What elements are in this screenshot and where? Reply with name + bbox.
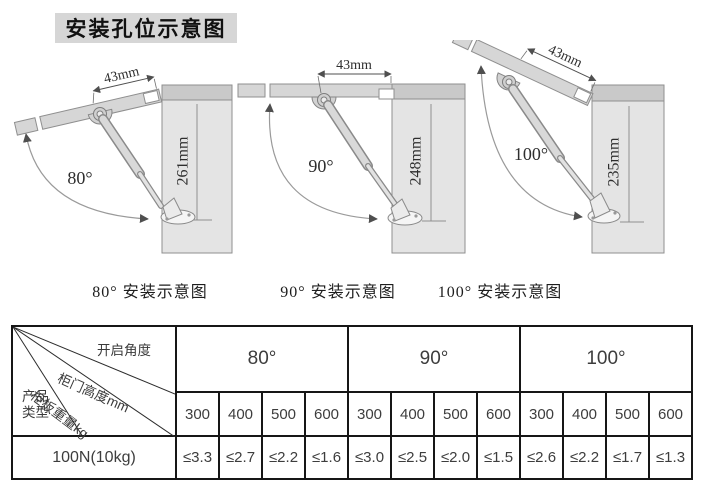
value-cell: ≤2.7 [219, 436, 262, 479]
height-dimension-label: 248mm [408, 136, 425, 185]
height-header: 400 [563, 392, 606, 436]
height-header: 600 [305, 392, 348, 436]
value-cell: ≤1.3 [649, 436, 692, 479]
height-header: 600 [477, 392, 520, 436]
value-cell: ≤3.0 [348, 436, 391, 479]
angle-header-80: 80° [176, 326, 348, 392]
value-cell: ≤1.5 [477, 436, 520, 479]
height-header: 500 [606, 392, 649, 436]
spec-table: 开启角度 柜门高度mm 柜板重量kg 产品 类型 80° 90° 100° 30… [11, 325, 693, 480]
cabinet-panel [592, 85, 664, 253]
table-row: 100N(10kg) ≤3.3 ≤2.7 ≤2.2 ≤1.6 ≤3.0 ≤2.5… [12, 436, 692, 479]
height-header: 400 [391, 392, 434, 436]
value-cell: ≤2.0 [434, 436, 477, 479]
installation-diagrams: 261mm 43mm 80 [0, 40, 704, 302]
cabinet-panel [392, 84, 465, 253]
page-title: 安装孔位示意图 [55, 13, 237, 43]
angle-label: 100° [514, 144, 548, 164]
height-dimension-label: 235mm [606, 137, 623, 186]
width-dimension-label: 43mm [546, 42, 585, 71]
height-header: 300 [176, 392, 219, 436]
diagram-90: 248mm 43mm 90° [238, 58, 465, 253]
height-header: 500 [434, 392, 477, 436]
width-dimension-label: 43mm [336, 58, 372, 73]
diagram-80: 261mm 43mm 80 [8, 61, 232, 253]
door: 43mm [452, 40, 605, 105]
value-cell: ≤2.2 [563, 436, 606, 479]
corner-header-cell: 开启角度 柜门高度mm 柜板重量kg 产品 类型 [12, 326, 176, 436]
angle-header-90: 90° [348, 326, 520, 392]
door [238, 84, 265, 97]
cabinet-top-band [162, 85, 232, 100]
height-header: 500 [262, 392, 305, 436]
cabinet-top-band [392, 84, 465, 99]
value-cell: ≤2.6 [520, 436, 563, 479]
corner-product-type-label: 产品 类型 [22, 389, 49, 421]
diagram-100: 235mm 43mm 10 [452, 40, 664, 253]
height-header: 400 [219, 392, 262, 436]
value-cell: ≤1.7 [606, 436, 649, 479]
caption-100: 100° 安装示意图 [438, 278, 562, 302]
door: 43mm [8, 61, 162, 135]
value-cell: ≤1.6 [305, 436, 348, 479]
value-cell: ≤2.5 [391, 436, 434, 479]
cabinet-top-band [592, 85, 664, 101]
height-dimension-label: 261mm [175, 136, 192, 185]
height-header: 600 [649, 392, 692, 436]
angle-label: 90° [308, 156, 333, 176]
caption-80: 80° 安装示意图 [92, 278, 207, 302]
height-header: 300 [348, 392, 391, 436]
page: 安装孔位示意图 261mm 43mm [0, 0, 704, 500]
width-dimension-label: 43mm [103, 64, 141, 87]
angle-label: 80° [67, 168, 92, 188]
latch-plate [379, 89, 394, 99]
angle-header-100: 100° [520, 326, 692, 392]
height-header: 300 [520, 392, 563, 436]
value-cell: ≤2.2 [262, 436, 305, 479]
caption-90: 90° 安装示意图 [280, 278, 395, 302]
value-cell: ≤3.3 [176, 436, 219, 479]
product-row-label: 100N(10kg) [12, 436, 176, 479]
corner-open-angle-label: 开启角度 [97, 339, 151, 359]
